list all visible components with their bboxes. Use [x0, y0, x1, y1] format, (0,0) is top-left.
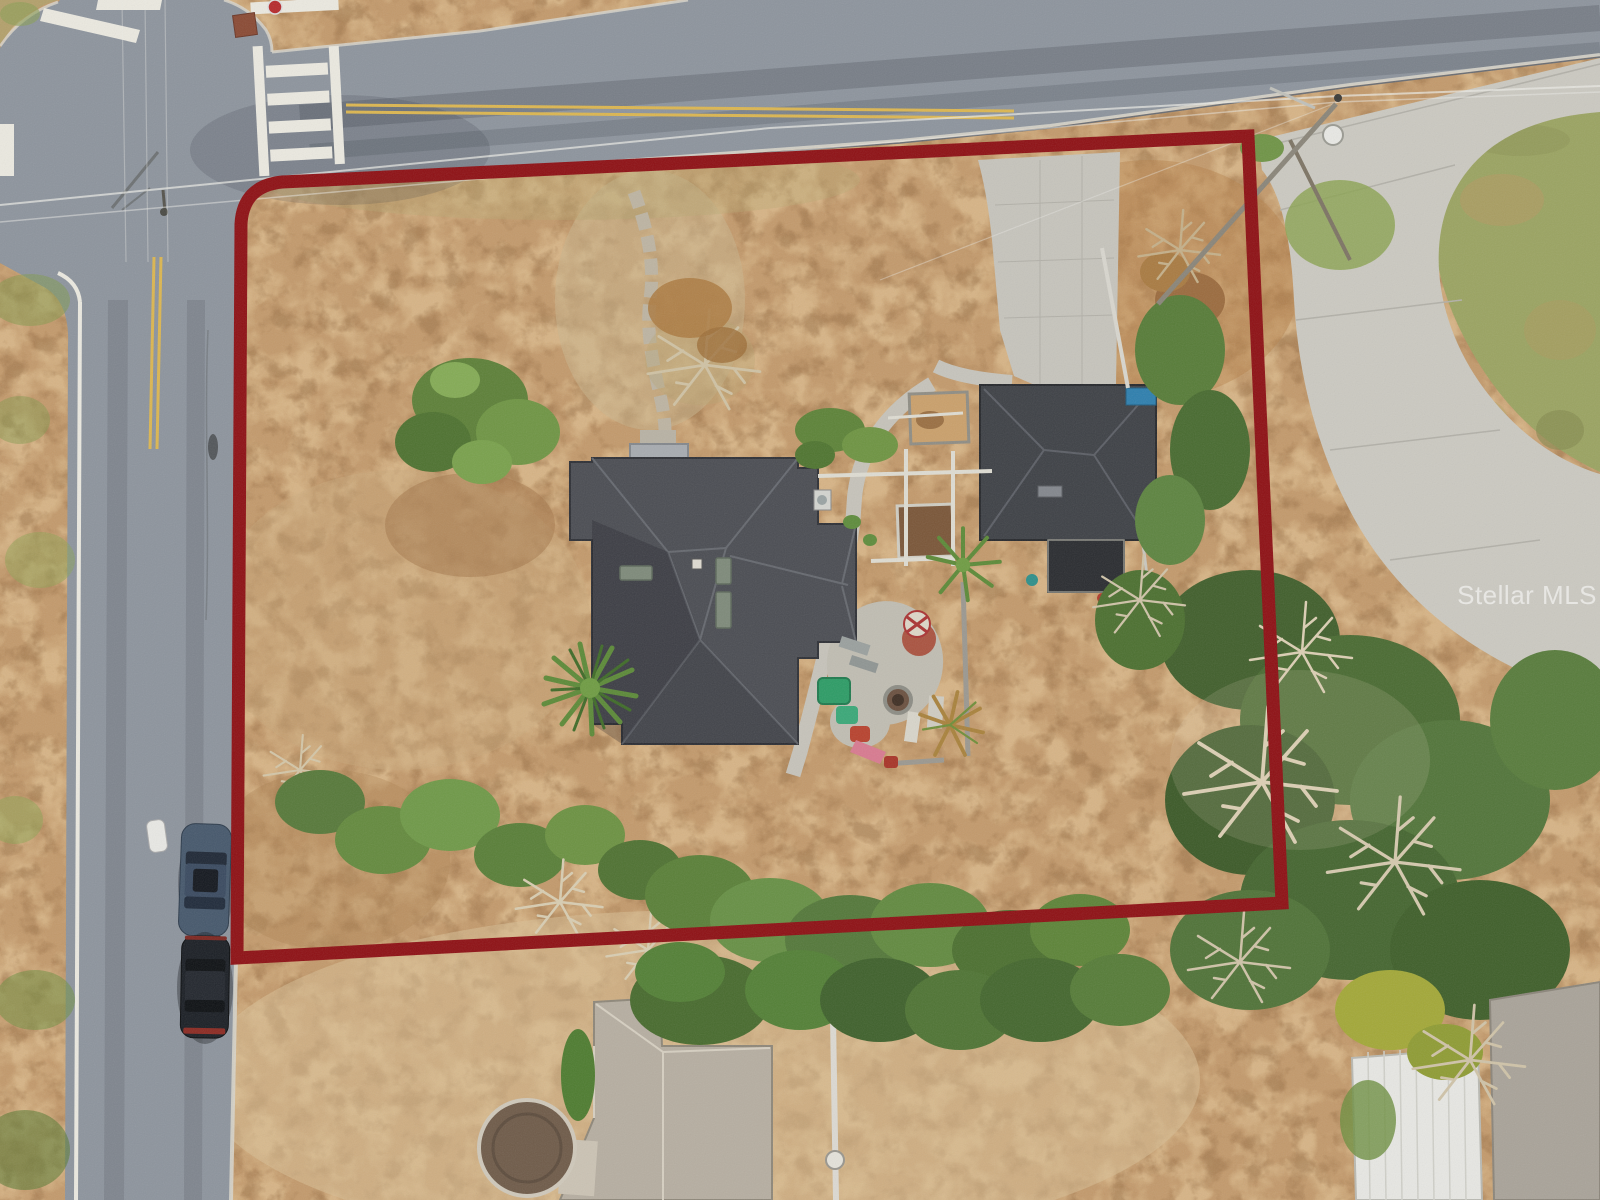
- aerial-photo: Stellar MLS: [0, 0, 1600, 1200]
- photo-grain: [0, 0, 1600, 1200]
- watermark: Stellar MLS: [1457, 580, 1597, 610]
- aerial-photo-canvas: Stellar MLS: [0, 0, 1600, 1200]
